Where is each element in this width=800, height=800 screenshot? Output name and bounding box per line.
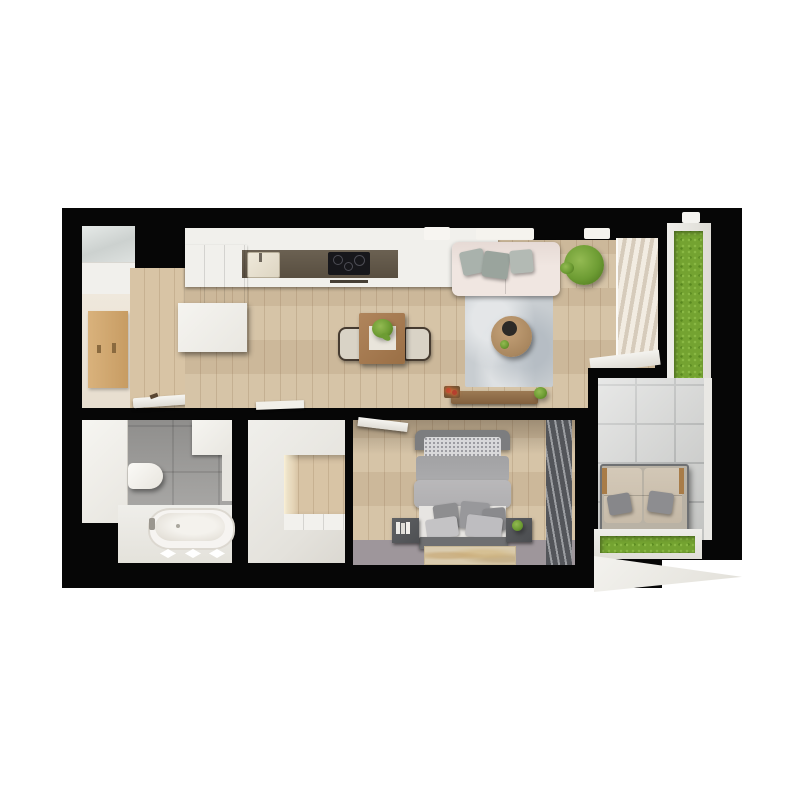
loveseat-wood-post-icon	[679, 468, 684, 494]
floor-plan-render	[0, 0, 800, 800]
toilet	[128, 463, 163, 489]
ceiling-lamp	[476, 228, 534, 240]
coffee-table-tray-icon	[502, 321, 517, 336]
closet-nook-glow	[284, 455, 298, 514]
utensil-rail	[330, 280, 368, 283]
ceiling-lamp	[584, 228, 610, 239]
candle-icon	[452, 390, 457, 395]
kitchen-base-cabinets	[185, 245, 247, 305]
grass-panel-vertical	[674, 231, 703, 381]
living-potted-plant-sprig	[560, 262, 574, 274]
entry-coat-panel	[88, 311, 128, 388]
books-icon	[401, 523, 405, 534]
bedroom-foot-rug	[424, 546, 516, 565]
closet-door-leaf	[256, 400, 304, 410]
bathtub-basin	[155, 513, 225, 541]
sofa-pillow	[509, 249, 534, 274]
bench-plant-icon	[534, 387, 547, 399]
coat-hook-icon	[112, 343, 116, 353]
entry-wardrobe-base	[82, 262, 135, 295]
coffee-table-plant-icon	[500, 340, 509, 349]
burner-icon	[333, 255, 343, 265]
bathroom-upper-cabinet	[192, 420, 232, 455]
kitchen-sink	[247, 252, 280, 278]
candle-icon	[446, 388, 451, 393]
dining-chair-right	[404, 327, 431, 361]
bath-faucet-icon	[149, 518, 155, 530]
ceiling-lamp	[424, 227, 450, 240]
faucet-icon	[259, 253, 262, 262]
loveseat-wood-post-icon	[602, 468, 607, 494]
burner-icon	[344, 262, 353, 271]
burner-icon	[354, 255, 365, 266]
books-icon	[406, 522, 410, 534]
grass-panel-horizontal	[600, 536, 695, 553]
balcony-ledge	[594, 556, 742, 592]
kitchen-island	[178, 303, 247, 352]
nightstand-plant-icon	[512, 520, 523, 531]
loveseat-pillow	[647, 490, 675, 514]
books-icon	[396, 522, 400, 534]
bedroom-dark-blinds	[546, 420, 572, 565]
coat-hook-icon	[97, 345, 101, 353]
entry-wardrobe-glass	[82, 226, 135, 262]
loveseat-pillow	[606, 492, 632, 516]
closet-shelf-band	[284, 514, 345, 530]
balcony-right-frame	[704, 378, 712, 540]
vent-box-icon	[682, 212, 700, 223]
media-bench	[451, 391, 538, 404]
bathtub-drain-icon	[176, 524, 180, 528]
sofa-pillow	[481, 250, 510, 279]
bed-duvet-upper	[416, 456, 509, 482]
living-window-blinds	[616, 238, 658, 365]
bathroom-side-shelf	[222, 455, 232, 501]
